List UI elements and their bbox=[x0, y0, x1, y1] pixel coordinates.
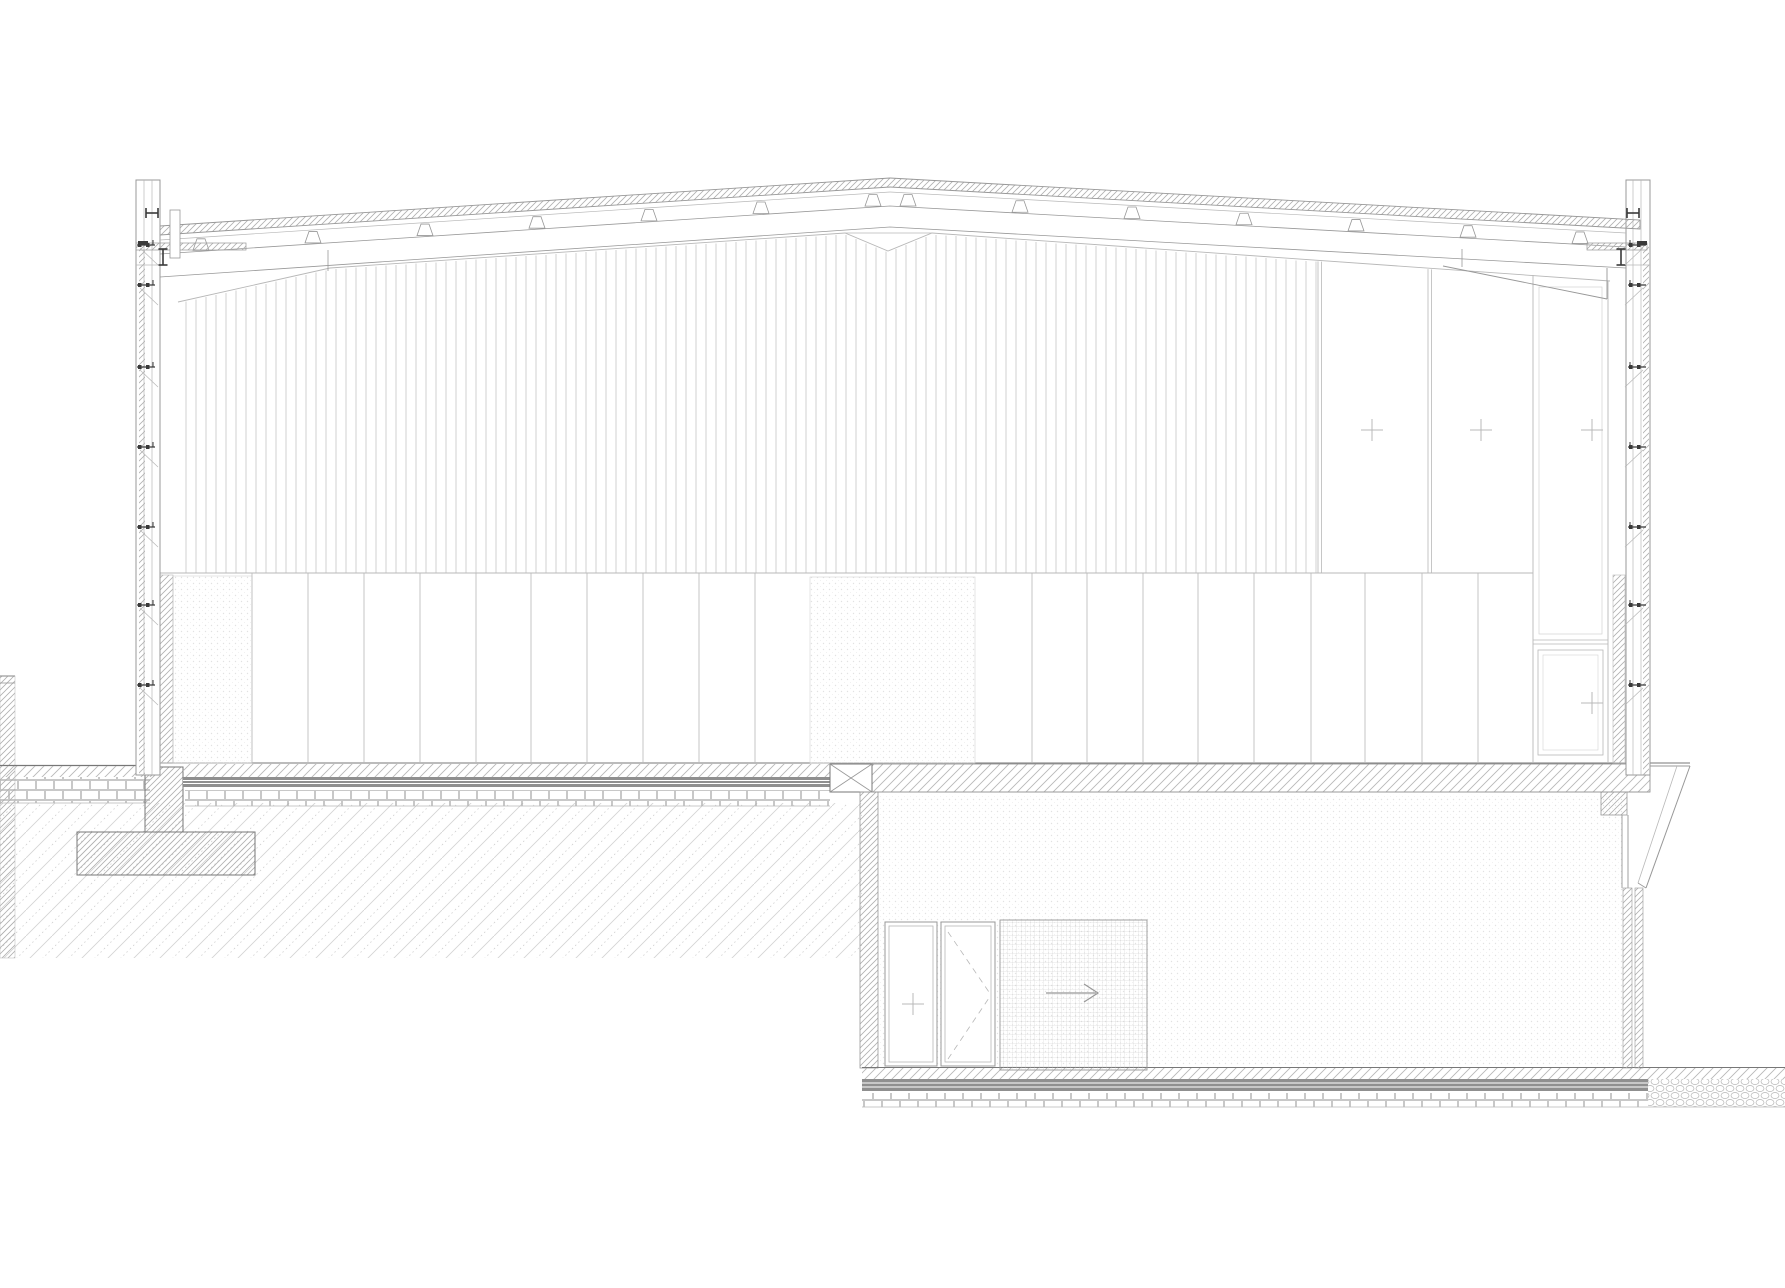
foundation-footing bbox=[77, 832, 255, 875]
layer-ground bbox=[0, 676, 862, 958]
right-mast-hatch bbox=[1643, 246, 1649, 775]
bracket-dot bbox=[1637, 683, 1641, 687]
basement-floor-insulation bbox=[862, 1093, 1648, 1107]
basement-left-wall bbox=[860, 792, 878, 1068]
bracket-dot bbox=[146, 683, 150, 687]
bracket-dot bbox=[138, 365, 142, 369]
purlin bbox=[753, 202, 769, 214]
bracket-dot bbox=[138, 603, 142, 607]
bracket-dot bbox=[146, 525, 150, 529]
terrain-edge-strip bbox=[0, 676, 15, 958]
bracket-dot bbox=[138, 525, 142, 529]
bracket-dot bbox=[1637, 365, 1641, 369]
cladding-sheet-joints bbox=[1318, 261, 1432, 573]
fascia-left bbox=[170, 210, 180, 258]
grade-insulation-left bbox=[0, 777, 150, 803]
basement-right-wall-outer-leaf bbox=[1635, 888, 1643, 1068]
basement-door-frame bbox=[941, 922, 995, 1066]
bracket-dot bbox=[138, 445, 142, 449]
purlin bbox=[1572, 232, 1588, 244]
architectural-section-sheet bbox=[0, 0, 1785, 1288]
purlin bbox=[641, 209, 657, 221]
bracket-dot bbox=[146, 603, 150, 607]
bracket-dot bbox=[1637, 283, 1641, 287]
purlin bbox=[865, 195, 881, 207]
foundation-stem bbox=[145, 767, 183, 832]
steel-profile-symbol bbox=[1617, 249, 1626, 265]
layer-upper-wall bbox=[152, 233, 1625, 763]
purlin bbox=[1460, 226, 1476, 238]
exterior-ground-screed-right bbox=[1648, 1068, 1785, 1079]
soil-mass bbox=[0, 803, 862, 958]
bracket-dot bbox=[146, 243, 150, 247]
bracket-dot bbox=[146, 283, 150, 287]
layer-roof bbox=[136, 178, 1647, 299]
purlin bbox=[529, 217, 545, 229]
bracket-dot bbox=[146, 445, 150, 449]
basement-right-wall-inner-leaf bbox=[1623, 888, 1632, 1068]
bracket-dot bbox=[1637, 525, 1641, 529]
wall-panel-textured-left bbox=[173, 576, 252, 763]
basement-floor-screed bbox=[862, 1068, 1648, 1079]
basement-window-frame bbox=[885, 922, 937, 1066]
purlin bbox=[417, 224, 433, 236]
basement-sliding-grille-door bbox=[1000, 920, 1147, 1070]
roof-purlins bbox=[193, 195, 1588, 251]
exterior-ground-gravel-right bbox=[1648, 1079, 1785, 1107]
slab-over-basement bbox=[872, 764, 1650, 792]
layer-basement bbox=[860, 766, 1785, 1107]
haunch-right-diagonal bbox=[1443, 266, 1607, 299]
left-mast-hatch bbox=[139, 246, 145, 775]
wall-top-edge bbox=[178, 233, 1610, 302]
building-section-drawing bbox=[0, 0, 1785, 1288]
bracket-dot bbox=[1637, 243, 1641, 247]
bracket-dot bbox=[146, 365, 150, 369]
purlin bbox=[1236, 213, 1252, 225]
purlin bbox=[1124, 207, 1140, 219]
floor-insulation-left bbox=[185, 790, 830, 806]
bracket-dot bbox=[138, 283, 142, 287]
grade-screed-left bbox=[0, 766, 152, 777]
bracket-dot bbox=[138, 683, 142, 687]
purlin bbox=[1012, 201, 1028, 213]
floor-screed-left bbox=[183, 764, 830, 777]
right-bay-panel-upper bbox=[1539, 287, 1602, 634]
purlin bbox=[900, 195, 916, 207]
slab-edge-downstand bbox=[1601, 792, 1627, 815]
purlin bbox=[1348, 219, 1364, 231]
floor-membrane-left bbox=[183, 777, 830, 787]
purlin bbox=[305, 231, 321, 243]
corrugated-cladding bbox=[186, 235, 1316, 573]
wall-panel-textured-wide bbox=[810, 577, 975, 763]
wall-base-strip-right bbox=[1613, 575, 1625, 763]
canopy-end-line bbox=[1638, 883, 1646, 888]
bracket-dot bbox=[1637, 603, 1641, 607]
bracket-dot bbox=[1637, 445, 1641, 449]
layer-basement-openings bbox=[885, 920, 1147, 1070]
bracket-dot bbox=[138, 243, 142, 247]
canopy-outer-line bbox=[1646, 766, 1690, 888]
basement-floor-membrane bbox=[862, 1079, 1648, 1091]
